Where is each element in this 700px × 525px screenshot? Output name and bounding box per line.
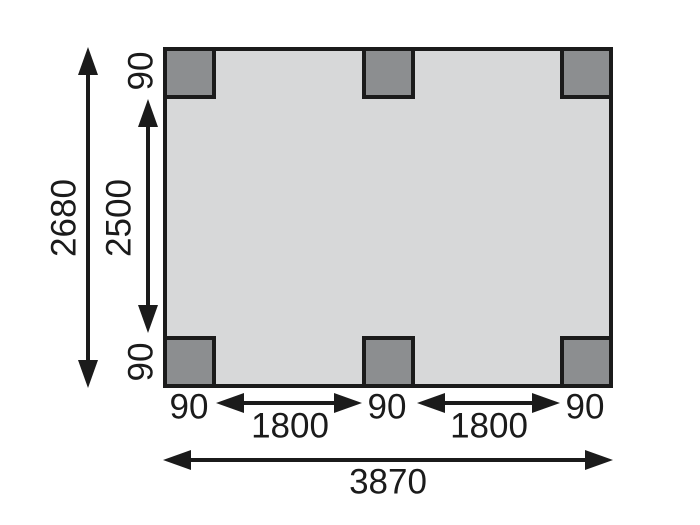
overall-height-label: 2680 xyxy=(47,179,82,257)
dimension-arrows xyxy=(0,0,700,525)
inner-height-label: 2500 xyxy=(102,179,137,257)
post-size-left-label: 90 xyxy=(170,390,209,425)
post-size-bottom-label: 90 xyxy=(124,343,159,382)
post-size-right-label: 90 xyxy=(566,390,605,425)
foundation-plan-diagram: 2680 2500 90 90 90 1800 90 1800 90 3870 xyxy=(0,0,700,525)
right-span-label: 1800 xyxy=(450,409,528,444)
post-size-top-label: 90 xyxy=(124,52,159,91)
post-size-middle-label: 90 xyxy=(368,390,407,425)
inner-height-arrow xyxy=(138,99,158,333)
left-span-label: 1800 xyxy=(251,409,329,444)
overall-width-label: 3870 xyxy=(349,465,427,500)
